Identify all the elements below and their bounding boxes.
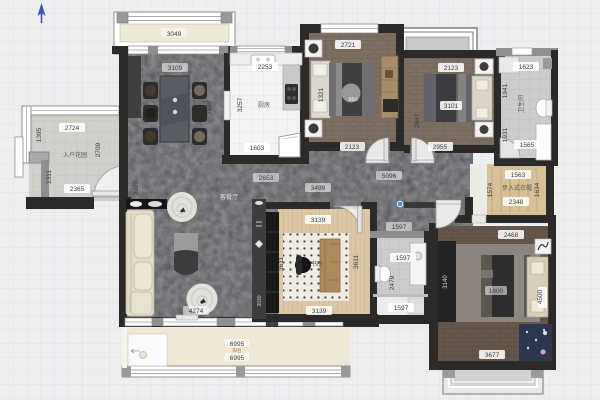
svg-text:3499: 3499 bbox=[311, 185, 326, 192]
svg-text:3139: 3139 bbox=[311, 217, 326, 224]
svg-text:3611: 3611 bbox=[278, 257, 285, 271]
svg-text:6995: 6995 bbox=[230, 355, 245, 362]
svg-text:3049: 3049 bbox=[167, 31, 182, 38]
svg-text:2479: 2479 bbox=[389, 275, 396, 290]
svg-text:2709: 2709 bbox=[95, 142, 102, 157]
svg-text:6995: 6995 bbox=[230, 341, 245, 348]
svg-text:2724: 2724 bbox=[65, 125, 80, 132]
svg-text:2123: 2123 bbox=[345, 144, 360, 151]
svg-text:4500: 4500 bbox=[537, 289, 544, 304]
svg-text:2020: 2020 bbox=[133, 180, 140, 195]
svg-text:1574: 1574 bbox=[487, 182, 494, 197]
svg-text:1395: 1395 bbox=[36, 127, 43, 142]
svg-text:1565: 1565 bbox=[520, 142, 535, 149]
svg-text:3101: 3101 bbox=[444, 103, 459, 110]
svg-text:书房: 书房 bbox=[311, 260, 323, 268]
svg-text:3611: 3611 bbox=[353, 255, 360, 269]
svg-text:1931: 1931 bbox=[502, 127, 509, 142]
svg-text:2721: 2721 bbox=[341, 42, 356, 49]
svg-text:2468: 2468 bbox=[504, 232, 519, 239]
svg-text:2653: 2653 bbox=[259, 175, 274, 182]
svg-text:1563: 1563 bbox=[511, 172, 526, 179]
svg-text:客餐厅: 客餐厅 bbox=[220, 193, 239, 201]
svg-text:1603: 1603 bbox=[250, 145, 265, 152]
svg-text:2253: 2253 bbox=[258, 64, 273, 71]
svg-text:2955: 2955 bbox=[433, 144, 448, 151]
svg-text:阳台: 阳台 bbox=[233, 347, 242, 354]
svg-text:2123: 2123 bbox=[444, 65, 459, 72]
svg-text:3030: 3030 bbox=[257, 295, 263, 306]
svg-text:1597: 1597 bbox=[394, 305, 409, 312]
svg-text:1597: 1597 bbox=[392, 224, 407, 231]
svg-text:卫生间: 卫生间 bbox=[517, 95, 525, 113]
svg-text:1321: 1321 bbox=[318, 87, 325, 102]
svg-text:1597: 1597 bbox=[396, 255, 411, 262]
svg-text:2847: 2847 bbox=[414, 113, 421, 128]
svg-text:3677: 3677 bbox=[485, 352, 500, 359]
svg-text:4274: 4274 bbox=[189, 308, 204, 315]
svg-text:3139: 3139 bbox=[312, 308, 327, 315]
svg-text:1800: 1800 bbox=[489, 288, 504, 295]
svg-text:3930: 3930 bbox=[206, 100, 213, 115]
svg-text:厨房: 厨房 bbox=[258, 101, 270, 109]
svg-text:3109: 3109 bbox=[168, 65, 183, 72]
svg-text:步入式衣帽: 步入式衣帽 bbox=[502, 184, 532, 192]
svg-text:1634: 1634 bbox=[534, 182, 541, 197]
svg-text:3140: 3140 bbox=[443, 275, 449, 289]
svg-text:3257: 3257 bbox=[237, 97, 244, 112]
svg-text:1623: 1623 bbox=[519, 64, 534, 71]
svg-text:5096: 5096 bbox=[382, 173, 397, 180]
svg-text:2365: 2365 bbox=[70, 186, 85, 193]
svg-text:2348: 2348 bbox=[509, 199, 524, 206]
svg-text:860: 860 bbox=[348, 97, 357, 103]
svg-text:入户花园: 入户花园 bbox=[63, 151, 87, 159]
svg-text:1941: 1941 bbox=[502, 83, 509, 98]
svg-text:1311: 1311 bbox=[46, 170, 53, 184]
